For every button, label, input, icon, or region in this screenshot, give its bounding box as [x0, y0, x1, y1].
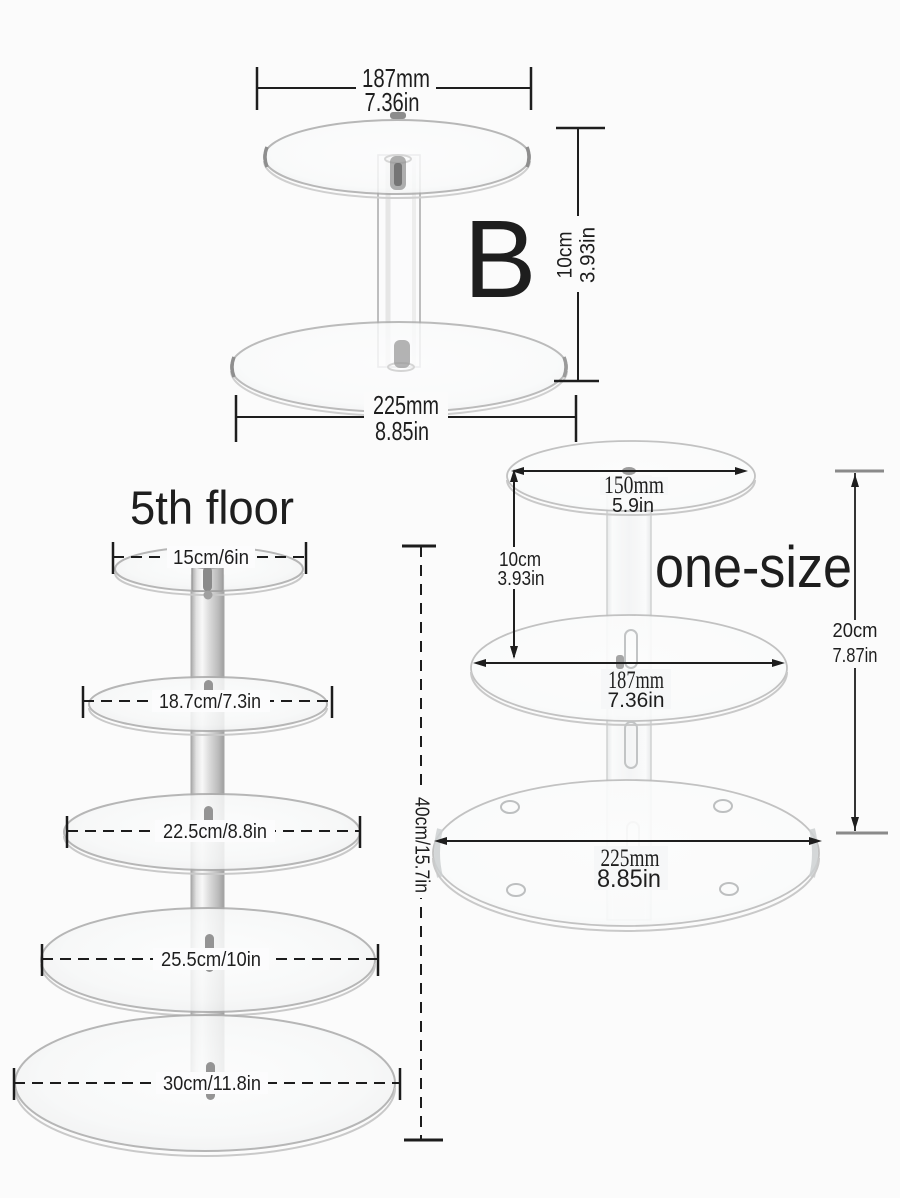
svg-text:5.9in: 5.9in: [612, 495, 654, 517]
svg-text:15cm/6in: 15cm/6in: [173, 547, 249, 569]
svg-text:3.93in: 3.93in: [577, 227, 600, 283]
svg-text:7.87in: 7.87in: [833, 645, 878, 667]
svg-text:7.36in: 7.36in: [608, 689, 665, 712]
svg-text:5th floor: 5th floor: [130, 481, 294, 534]
svg-text:10cm: 10cm: [554, 232, 577, 279]
svg-text:40cm/15.7in: 40cm/15.7in: [411, 797, 433, 893]
svg-text:18.7cm/7.3in: 18.7cm/7.3in: [159, 691, 261, 713]
svg-text:25.5cm/10in: 25.5cm/10in: [161, 949, 261, 971]
svg-text:one-size: one-size: [655, 535, 852, 600]
svg-text:8.85in: 8.85in: [597, 865, 661, 893]
svg-text:3.93in: 3.93in: [498, 568, 545, 590]
svg-text:20cm: 20cm: [833, 620, 878, 642]
svg-text:7.36in: 7.36in: [365, 87, 420, 117]
svg-text:30cm/11.8in: 30cm/11.8in: [163, 1073, 261, 1095]
svg-text:8.85in: 8.85in: [375, 416, 429, 446]
svg-text:B: B: [464, 198, 537, 321]
svg-text:22.5cm/8.8in: 22.5cm/8.8in: [163, 821, 267, 843]
